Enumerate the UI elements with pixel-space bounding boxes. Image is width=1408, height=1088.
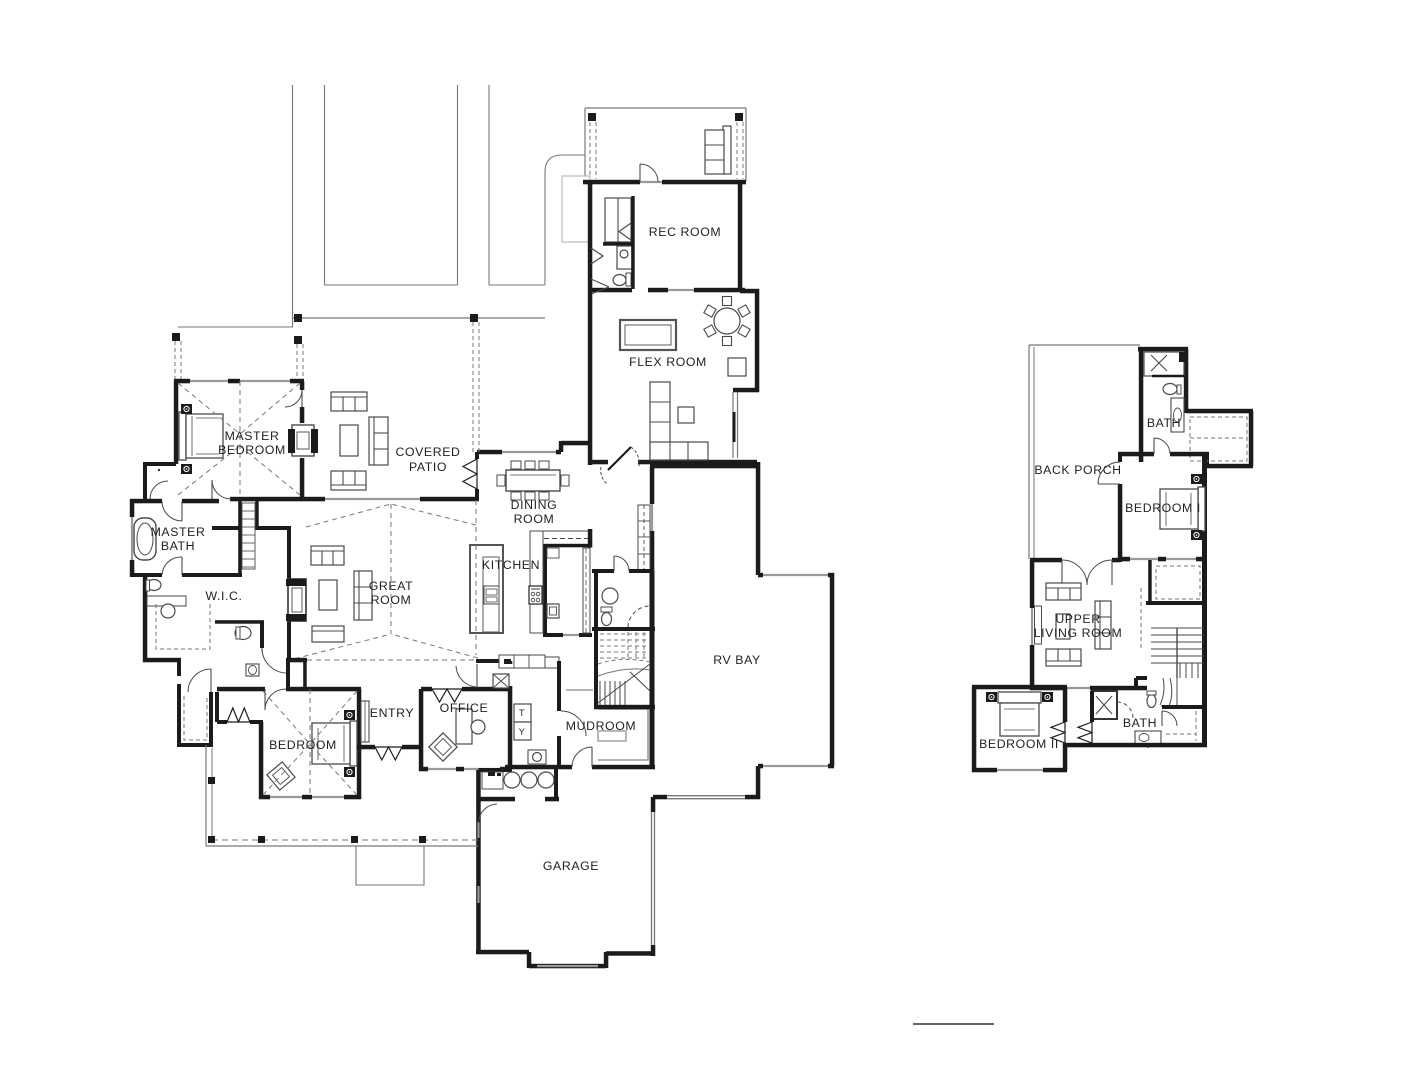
svg-text:ENTRY: ENTRY [370,706,414,720]
svg-text:KITCHEN: KITCHEN [482,558,540,572]
svg-text:COVERED: COVERED [395,445,460,459]
svg-text:BEDROOM: BEDROOM [269,738,337,752]
svg-text:BEDROOM I: BEDROOM I [1125,501,1201,515]
svg-text:PATIO: PATIO [409,460,447,474]
svg-text:DINING: DINING [511,498,558,512]
svg-text:BEDROOM: BEDROOM [218,443,286,457]
svg-text:GARAGE: GARAGE [543,859,599,873]
svg-text:ROOM: ROOM [514,512,555,526]
svg-text:MASTER: MASTER [225,429,280,443]
svg-text:Y: Y [519,727,526,737]
svg-text:UPPER: UPPER [1055,612,1100,626]
svg-text:BATH: BATH [1147,416,1181,430]
svg-text:W.I.C.: W.I.C. [205,589,242,603]
svg-text:BATH: BATH [1123,716,1157,730]
svg-text:BEDROOM II: BEDROOM II [979,737,1059,751]
svg-text:BATH: BATH [161,539,195,553]
svg-text:OFFICE: OFFICE [440,701,489,715]
svg-text:LIVING ROOM: LIVING ROOM [1034,626,1123,640]
svg-text:T: T [519,708,525,718]
svg-text:REC ROOM: REC ROOM [649,225,721,239]
svg-text:MUDROOM: MUDROOM [566,719,636,733]
svg-text:RV BAY: RV BAY [713,653,761,667]
svg-text:FLEX ROOM: FLEX ROOM [629,355,707,369]
svg-text:MASTER: MASTER [151,525,206,539]
